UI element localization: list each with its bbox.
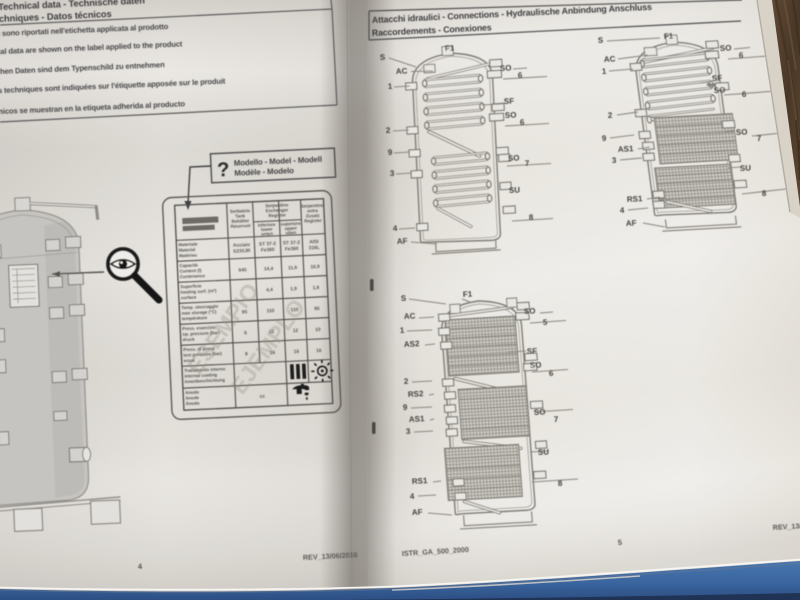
svg-text:Acciaio: Acciaio <box>233 242 250 249</box>
svg-text:Register: Register <box>304 218 322 224</box>
svg-text:SF: SF <box>504 96 515 106</box>
svg-text:SO: SO <box>714 85 726 95</box>
svg-text:16: 16 <box>294 349 300 355</box>
svg-text:SF: SF <box>712 73 723 83</box>
svg-text:SU: SU <box>509 185 521 195</box>
svg-text:AS1: AS1 <box>618 144 635 154</box>
svg-text:Fe360: Fe360 <box>261 247 275 254</box>
svg-text:AF: AF <box>397 236 408 246</box>
svg-text:ST 37-2: ST 37-2 <box>259 241 277 248</box>
svg-text:ST 37-2: ST 37-2 <box>283 240 301 247</box>
svg-text:Ánodo: Ánodo <box>186 400 200 406</box>
svg-text:SO: SO <box>534 407 546 417</box>
svg-text:AC: AC <box>404 311 416 321</box>
svg-text:SU: SU <box>740 163 752 173</box>
svg-text:14,4: 14,4 <box>264 266 274 272</box>
svg-text:Fe360: Fe360 <box>285 246 299 253</box>
svg-text:unten: unten <box>261 231 273 237</box>
svg-text:11,6: 11,6 <box>288 265 298 271</box>
svg-text:Réservoir: Réservoir <box>230 223 251 229</box>
svg-text:cc: cc <box>260 394 266 399</box>
svg-text:10,9: 10,9 <box>310 264 320 270</box>
svg-text:oben: oben <box>286 230 297 235</box>
svg-text:SO: SO <box>736 127 748 137</box>
svg-text:95: 95 <box>314 306 320 312</box>
svg-text:10: 10 <box>315 327 321 333</box>
svg-text:Register: Register <box>268 212 286 218</box>
svg-text:945: 945 <box>239 267 248 273</box>
svg-text:5: 5 <box>618 538 623 547</box>
svg-text:SO: SO <box>505 110 517 120</box>
svg-text:?: ? <box>217 159 230 182</box>
svg-text:AISI: AISI <box>309 239 319 245</box>
svg-text:316L: 316L <box>309 245 320 251</box>
svg-text:1,6: 1,6 <box>313 285 320 291</box>
svg-text:SO: SO <box>524 306 536 316</box>
svg-text:AC: AC <box>604 54 616 64</box>
svg-text:4,4: 4,4 <box>266 287 273 293</box>
svg-text:SO: SO <box>500 63 512 73</box>
svg-text:F1: F1 <box>463 289 473 299</box>
svg-text:16: 16 <box>316 348 322 354</box>
svg-text:druck: druck <box>183 337 196 343</box>
svg-text:RS1: RS1 <box>412 476 429 486</box>
svg-text:AS2: AS2 <box>404 339 421 349</box>
svg-text:SO: SO <box>530 360 542 370</box>
svg-text:110: 110 <box>267 308 275 314</box>
svg-text:Matériau: Matériau <box>179 252 198 258</box>
svg-text:F1: F1 <box>445 43 455 53</box>
svg-text:AF: AF <box>412 507 423 517</box>
svg-text:AS1: AS1 <box>409 414 426 424</box>
svg-text:1,9: 1,9 <box>290 286 297 292</box>
svg-text:AF: AF <box>626 218 637 228</box>
svg-text:SF: SF <box>527 346 538 356</box>
svg-text:F1: F1 <box>664 31 674 41</box>
svg-text:RS1: RS1 <box>627 194 644 204</box>
svg-text:SO: SO <box>508 153 520 163</box>
svg-text:surface: surface <box>181 294 197 300</box>
svg-text:RS2: RS2 <box>408 389 425 399</box>
svg-text:S235JR: S235JR <box>233 248 251 255</box>
svg-text:AC: AC <box>396 66 408 76</box>
svg-text:SO: SO <box>720 43 732 53</box>
svg-text:SU: SU <box>538 447 550 457</box>
